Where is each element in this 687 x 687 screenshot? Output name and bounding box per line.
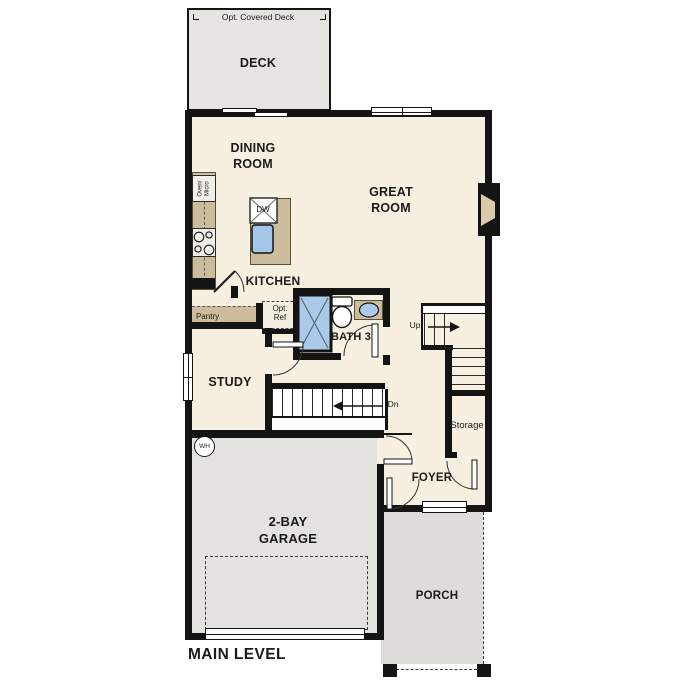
foyer-label: FOYER bbox=[402, 471, 462, 486]
patio-door-panel-1 bbox=[222, 108, 257, 113]
wall-foyer-top-line bbox=[384, 433, 412, 435]
window-mullion bbox=[188, 354, 189, 400]
porch-edge-right bbox=[483, 512, 484, 664]
room-porch bbox=[381, 512, 483, 664]
great-room-window bbox=[371, 107, 432, 116]
patio-door-panel-2 bbox=[254, 112, 288, 117]
oven-micro-label: Oven/ Micro bbox=[197, 178, 210, 200]
pantry-label: Pantry bbox=[196, 312, 230, 321]
bath3-label: BATH 3 bbox=[321, 330, 381, 344]
wall-kitchen-study bbox=[185, 322, 263, 329]
window-mullion bbox=[402, 108, 403, 115]
porch-label: PORCH bbox=[407, 589, 467, 604]
up-label: Up bbox=[403, 321, 427, 331]
front-door-threshold bbox=[422, 501, 467, 513]
garage-apron-outline bbox=[205, 556, 368, 630]
wall-counter-bottom-stub bbox=[187, 278, 215, 289]
wall-bath-right-upper bbox=[383, 288, 390, 327]
deck-label: DECK bbox=[228, 55, 288, 71]
porch-post-right bbox=[477, 664, 491, 677]
stairs-up-landing bbox=[423, 306, 485, 314]
wall-bath-left bbox=[293, 288, 300, 360]
wall-garage-left bbox=[185, 430, 192, 640]
plan-title: MAIN LEVEL bbox=[188, 645, 308, 665]
dw-label: DW bbox=[250, 205, 276, 214]
wall-pantry-stub bbox=[256, 303, 263, 329]
cooktop-appliance bbox=[192, 228, 216, 257]
stairs-down-top-wall bbox=[272, 383, 385, 389]
foyer-floor-area bbox=[377, 432, 485, 505]
stairs-down-treads bbox=[272, 389, 385, 417]
wall-garage-right-stub bbox=[377, 430, 384, 437]
stairs-up-top-line bbox=[423, 303, 485, 306]
porch-edge-bottom bbox=[396, 669, 477, 670]
water-heater-icon: WH bbox=[194, 436, 215, 457]
wall-storage-bottom-stub bbox=[445, 452, 457, 458]
stairs-lower-treads bbox=[452, 348, 485, 390]
stairs-down-landing bbox=[272, 418, 385, 430]
dn-label: Dn bbox=[381, 400, 405, 410]
study-label: STUDY bbox=[195, 374, 265, 390]
fireplace-block bbox=[478, 183, 500, 236]
dining-room-label: DINING ROOM bbox=[213, 140, 293, 172]
stairs-down-mid-line bbox=[272, 416, 385, 418]
garage-door bbox=[205, 628, 365, 640]
garage-door-track bbox=[206, 634, 364, 635]
oven-micro-appliance: Oven/ Micro bbox=[192, 175, 216, 202]
great-room-label: GREAT ROOM bbox=[359, 184, 423, 216]
bath-vanity bbox=[354, 300, 383, 320]
water-heater-label: WH bbox=[199, 443, 210, 450]
wall-garage-top bbox=[185, 430, 384, 438]
wall-bath-bottom bbox=[293, 353, 341, 360]
kitchen-label: KITCHEN bbox=[233, 274, 313, 289]
deck-corner-mark-right bbox=[320, 14, 326, 20]
wall-study-right-b bbox=[265, 374, 272, 430]
wall-garage-right bbox=[377, 464, 384, 640]
garage-label: 2-BAY GARAGE bbox=[246, 514, 330, 547]
wall-bath-right-stub bbox=[383, 355, 390, 365]
porch-post-left bbox=[383, 664, 397, 677]
wall-study-right-a bbox=[265, 328, 272, 347]
storage-label: Storage bbox=[442, 421, 492, 432]
stairs-up-treads bbox=[424, 314, 452, 345]
deck-option-label: Opt. Covered Deck bbox=[198, 13, 318, 23]
wall-storage-top bbox=[445, 390, 492, 396]
study-window bbox=[183, 353, 193, 401]
wall-right bbox=[485, 110, 492, 512]
front-door-track bbox=[423, 507, 466, 508]
wall-storage-left bbox=[445, 345, 452, 457]
opt-ref-label: Opt. Ref bbox=[266, 304, 294, 322]
